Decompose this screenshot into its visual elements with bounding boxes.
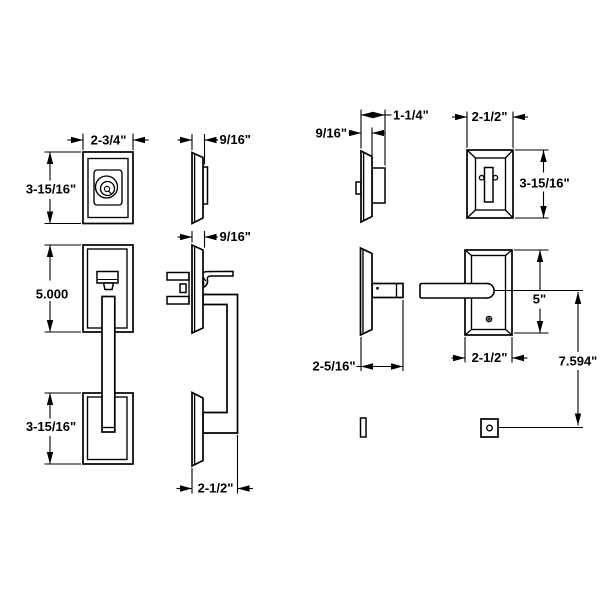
exterior-deadbolt-side-view: 9/16" xyxy=(178,132,251,224)
rose-profile xyxy=(192,153,203,224)
dim-label-grip-rose-thickness: 9/16" xyxy=(220,229,251,244)
thumb-piece xyxy=(97,272,118,284)
dim-label-interior-bolt-thickness: 9/16" xyxy=(316,126,347,141)
handleset-side-view: 9/16" 2-1/2" xyxy=(167,229,253,496)
grip-handle-profile xyxy=(203,295,238,434)
grip-bar-front-view xyxy=(102,297,115,433)
product-dimension-drawing: 2-3/4" 3-15/16" 9/16" 5.000 xyxy=(0,0,600,600)
latch-hub-spindle-tab xyxy=(180,284,186,293)
dim-label-lever-rose-width: 2-1/2" xyxy=(472,350,508,365)
door-lever xyxy=(420,283,494,298)
mid-rose-profile xyxy=(192,245,203,333)
interior-lever-side-view: 2-5/16" xyxy=(312,248,403,374)
handleset-bottom-plate-front-view: 3-15/16" xyxy=(26,393,133,464)
dimension-drawing-canvas: 2-3/4" 3-15/16" 9/16" 5.000 xyxy=(0,0,600,600)
interior-deadbolt-front-view: 2-1/2" 3-15/16" xyxy=(452,109,570,218)
dim-label-interior-bolt-width: 2-1/2" xyxy=(472,109,508,124)
dim-label-exterior-rose-thickness: 9/16" xyxy=(220,132,251,147)
thumb-piece-tip xyxy=(104,283,114,290)
dim-label-interior-bolt-projection: 1-1/4" xyxy=(393,108,429,123)
interior-bolt-rose-profile xyxy=(361,151,372,222)
dim-label-interior-bolt-height: 3-15/16" xyxy=(519,176,569,191)
deadbolt-rose-plate xyxy=(83,152,133,224)
dim-label-grip-projection: 2-1/2" xyxy=(198,481,234,496)
dim-label-lever-projection: 2-5/16" xyxy=(312,359,355,374)
dim-label-grip-plate-height: 5.000 xyxy=(36,287,69,302)
lever-rose-profile xyxy=(361,248,373,335)
grip-bar xyxy=(102,297,115,433)
lever-set-screw xyxy=(376,287,379,290)
exterior-deadbolt-front-view: 2-3/4" 3-15/16" xyxy=(26,133,149,224)
dim-label-lever-rose-height: 5" xyxy=(533,292,546,307)
bottom-rose-profile xyxy=(192,393,203,467)
dim-label-exterior-rose-height: 3-15/16" xyxy=(26,182,76,197)
hardware-parts xyxy=(361,418,584,437)
thumbturn-collar-profile xyxy=(372,168,385,203)
dim-label-lever-to-bolt-offset: 7.594" xyxy=(559,354,598,369)
dim-label-grip-bottom-height: 3-15/16" xyxy=(26,419,76,434)
spindle-side-view xyxy=(361,418,367,437)
spindle-end-view xyxy=(481,419,498,437)
dim-label-exterior-rose-width: 2-3/4" xyxy=(91,133,127,148)
latch-hub-bottom-arm xyxy=(167,297,189,305)
latch-hub-top-arm xyxy=(167,273,189,281)
thumbturn-paddle xyxy=(485,168,494,203)
interior-deadbolt-side-view: 1-1/4" 9/16" xyxy=(316,108,429,223)
interior-lever-front-view: 5" 2-1/2" 7.594" xyxy=(420,250,597,426)
handleset-top-plate-front-view: 5.000 xyxy=(36,245,133,332)
thumb-lever-profile xyxy=(202,271,233,287)
lever-profile xyxy=(372,284,403,298)
